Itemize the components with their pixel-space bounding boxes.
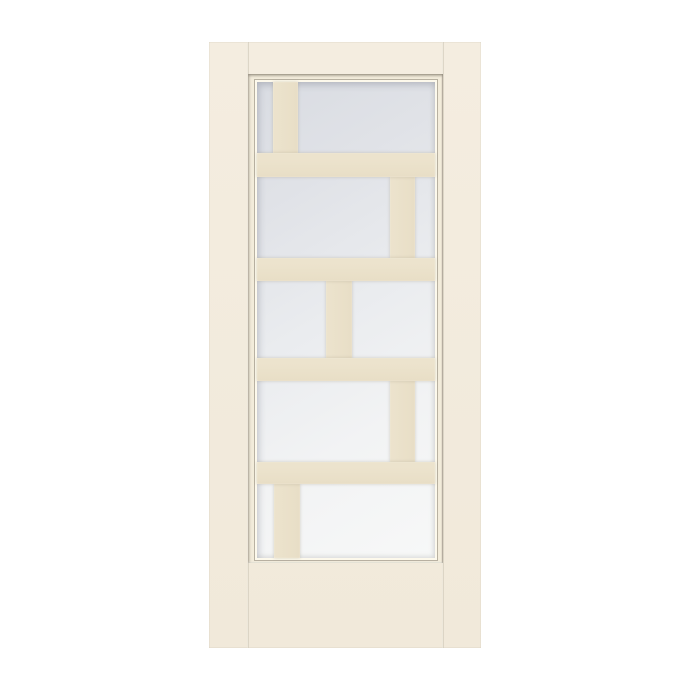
muntin-vertical-bar (326, 281, 352, 358)
page-background (0, 0, 690, 690)
muntin-horizontal-bar (257, 258, 435, 281)
top-rail (248, 42, 443, 74)
glass-frame-molding (248, 74, 443, 563)
door (209, 42, 481, 648)
muntin-vertical-bar (274, 484, 300, 558)
muntin-vertical-bar (390, 177, 415, 258)
muntin-vertical-bar (390, 381, 415, 462)
muntin-horizontal-bar (257, 462, 435, 484)
right-stile (443, 42, 481, 648)
left-stile (209, 42, 248, 648)
muntin-horizontal-bar (257, 153, 435, 177)
muntin-horizontal-bar (257, 358, 435, 381)
muntin-vertical-bar (273, 82, 298, 153)
glass-panel (257, 82, 435, 558)
bottom-rail (248, 563, 443, 648)
